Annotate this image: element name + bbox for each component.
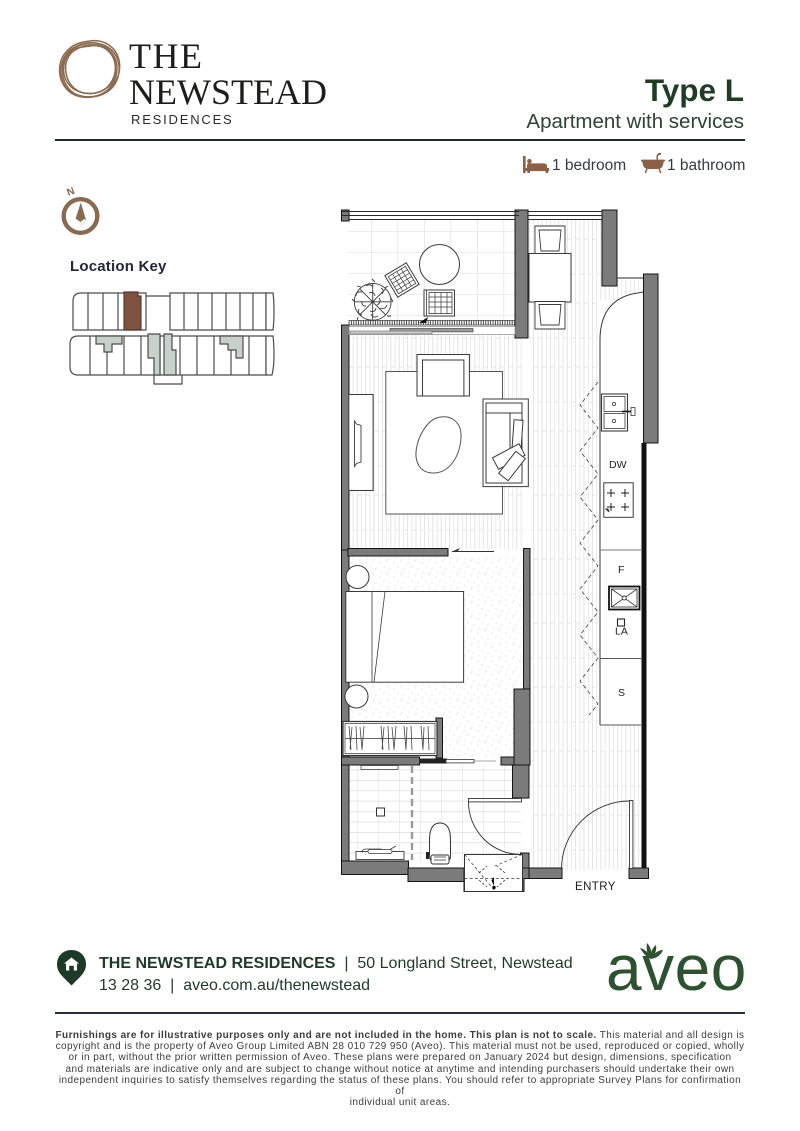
svg-text:aveo: aveo (606, 935, 747, 997)
svg-text:DW: DW (609, 459, 627, 471)
svg-text:LA: LA (615, 626, 628, 638)
svg-text:ENTRY: ENTRY (575, 881, 616, 893)
svg-text:F: F (618, 564, 624, 576)
svg-text:S: S (618, 687, 625, 699)
